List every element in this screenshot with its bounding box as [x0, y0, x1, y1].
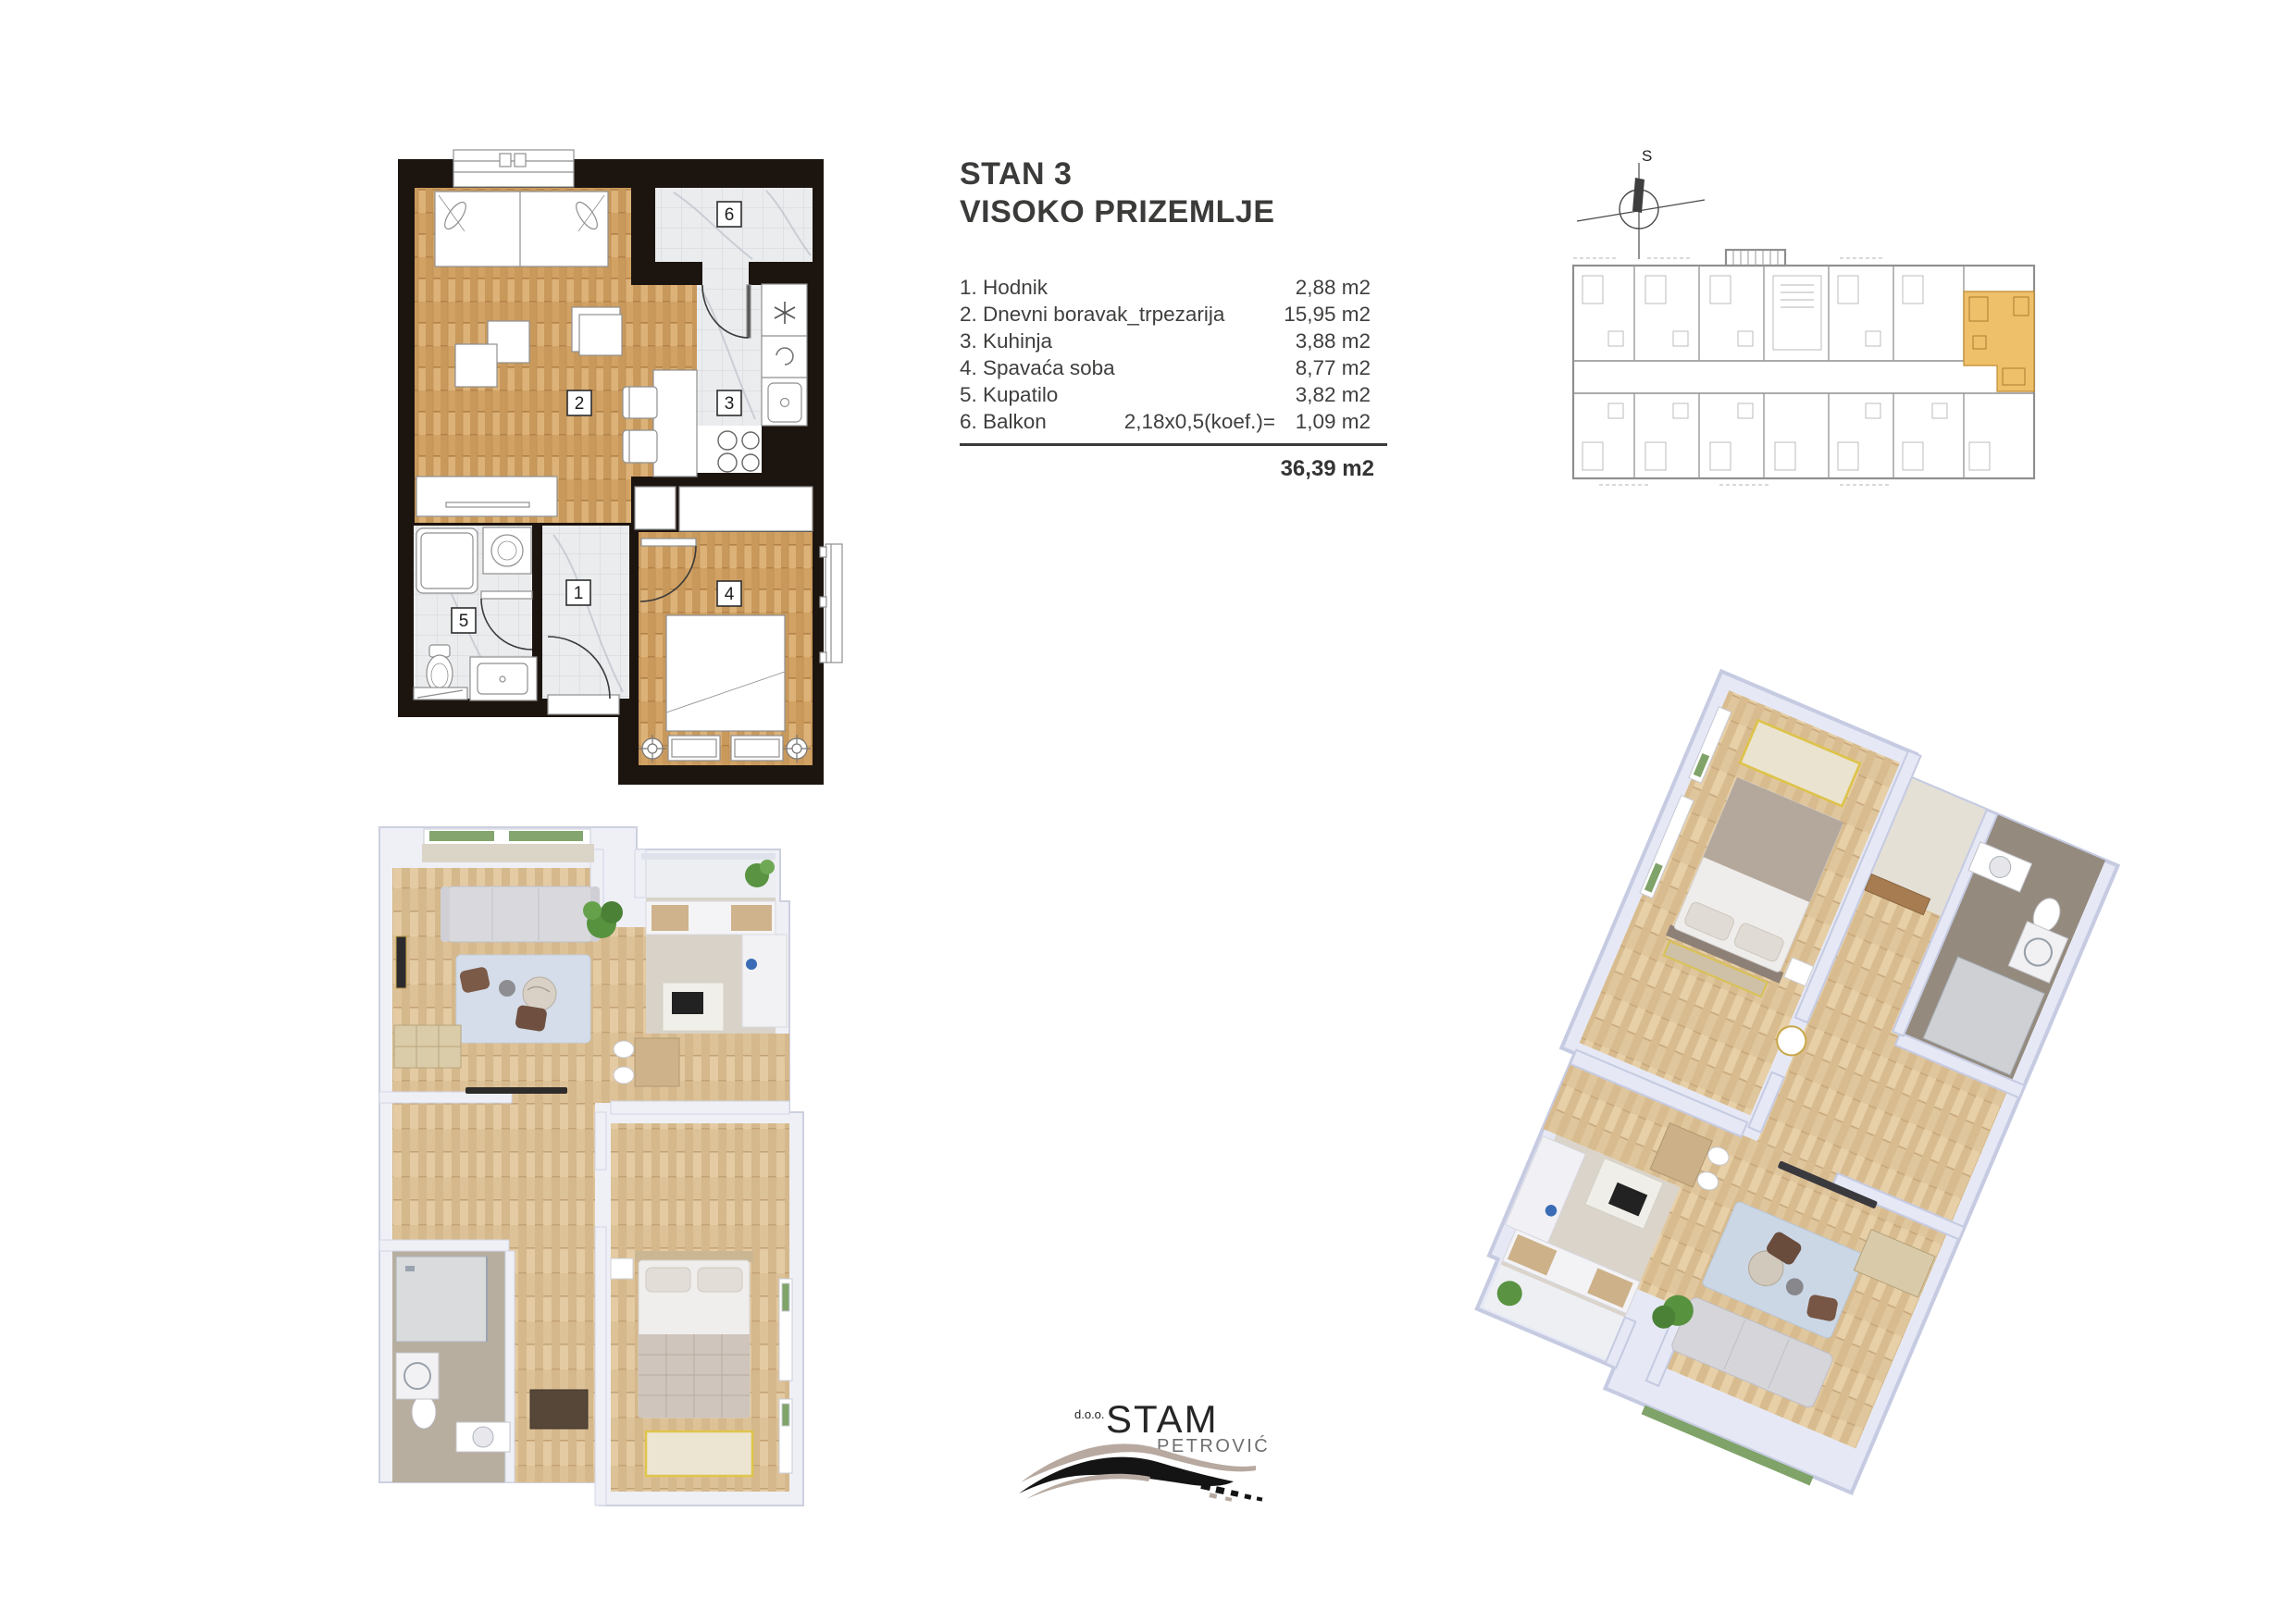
room-label: 6	[725, 205, 735, 225]
living-window	[453, 150, 574, 187]
room-label: 4	[725, 585, 735, 604]
room-list: 1. Hodnik 2,88 m2 2. Dnevni boravak_trpe…	[960, 274, 1387, 435]
nightstand	[611, 1258, 633, 1279]
logo-prefix: d.o.o.	[1074, 1407, 1105, 1421]
pouf	[515, 1005, 548, 1033]
tv-sideboard	[416, 477, 557, 516]
bath-door	[481, 591, 532, 599]
chair	[614, 1067, 634, 1084]
sofa	[446, 886, 594, 942]
tv	[465, 1087, 567, 1094]
unit-detail	[1573, 258, 1990, 485]
wardrobe	[635, 487, 676, 529]
highlighted-unit	[1964, 291, 2034, 391]
wardrobe	[679, 487, 813, 531]
chair	[614, 1041, 634, 1058]
coffee-table	[455, 344, 497, 387]
north-needle	[1632, 178, 1644, 213]
side-table	[579, 315, 622, 355]
hall-floor	[542, 526, 629, 699]
double-bed	[666, 615, 785, 731]
shelf	[414, 688, 467, 700]
washing-machine	[483, 527, 531, 574]
entry-door	[548, 695, 619, 714]
dining-chair	[623, 387, 657, 418]
room-row: 5. Kupatilo 3,82 m2	[960, 381, 1387, 408]
room-label: 1	[574, 584, 584, 603]
total-area: 36,39 m2	[960, 456, 1387, 482]
stair-bump	[1733, 250, 1778, 266]
room-row: 3. Kuhinja 3,88 m2	[960, 328, 1387, 354]
toilet	[427, 645, 453, 692]
render-top-view	[368, 816, 883, 1521]
page-subtitle: VISOKO PRIZEMLJE	[960, 193, 1387, 231]
balcony-door-floor	[702, 262, 749, 285]
coffee-table-round	[523, 977, 556, 1010]
room-row: 4. Spavaća soba 8,77 m2	[960, 354, 1387, 381]
room-row: 1. Hodnik 2,88 m2	[960, 274, 1387, 301]
doormat	[530, 1390, 588, 1429]
unit-walls	[1634, 266, 1964, 478]
sink-vanity	[470, 657, 537, 700]
balcony-door	[747, 285, 751, 338]
window	[779, 1279, 792, 1473]
wall-art	[396, 936, 406, 988]
room-row: 6. Balkon 2,18x0,5(koef.)= 1,09 m2	[960, 408, 1387, 435]
dining-table	[635, 1038, 679, 1086]
pillow	[646, 1268, 690, 1292]
floor-plan-2d: 1 2 3 4 5 6	[396, 146, 870, 796]
logo-name: STAM	[1106, 1397, 1219, 1441]
company-logo: d.o.o. STAM PETROVIĆ	[1011, 1390, 1275, 1515]
room-label: 3	[725, 394, 735, 414]
cooktop	[672, 992, 703, 1014]
compass-label: S	[1642, 147, 1652, 165]
page-title: STAN 3	[960, 155, 1387, 193]
pillow	[698, 1268, 742, 1292]
sofa-bed	[435, 192, 608, 266]
compass-icon: S	[1577, 147, 1705, 259]
apartment-info-panel: STAN 3 VISOKO PRIZEMLJE 1. Hodnik 2,88 m…	[960, 155, 1387, 482]
dining-table	[653, 370, 697, 477]
vanity	[456, 1422, 510, 1452]
dining-chair	[623, 430, 657, 463]
building-key-plan: S	[1562, 146, 2040, 490]
room-label: 5	[459, 612, 469, 631]
washer	[396, 1353, 439, 1399]
total-divider	[960, 443, 1387, 446]
room-label: 2	[575, 394, 585, 414]
bedroom-rug	[646, 1431, 752, 1476]
bathtub	[416, 528, 478, 593]
room-row: 2. Dnevni boravak_trpezarija 15,95 m2	[960, 301, 1387, 328]
render-rotated-view	[1307, 566, 2203, 1564]
bedroom-door	[641, 539, 696, 546]
